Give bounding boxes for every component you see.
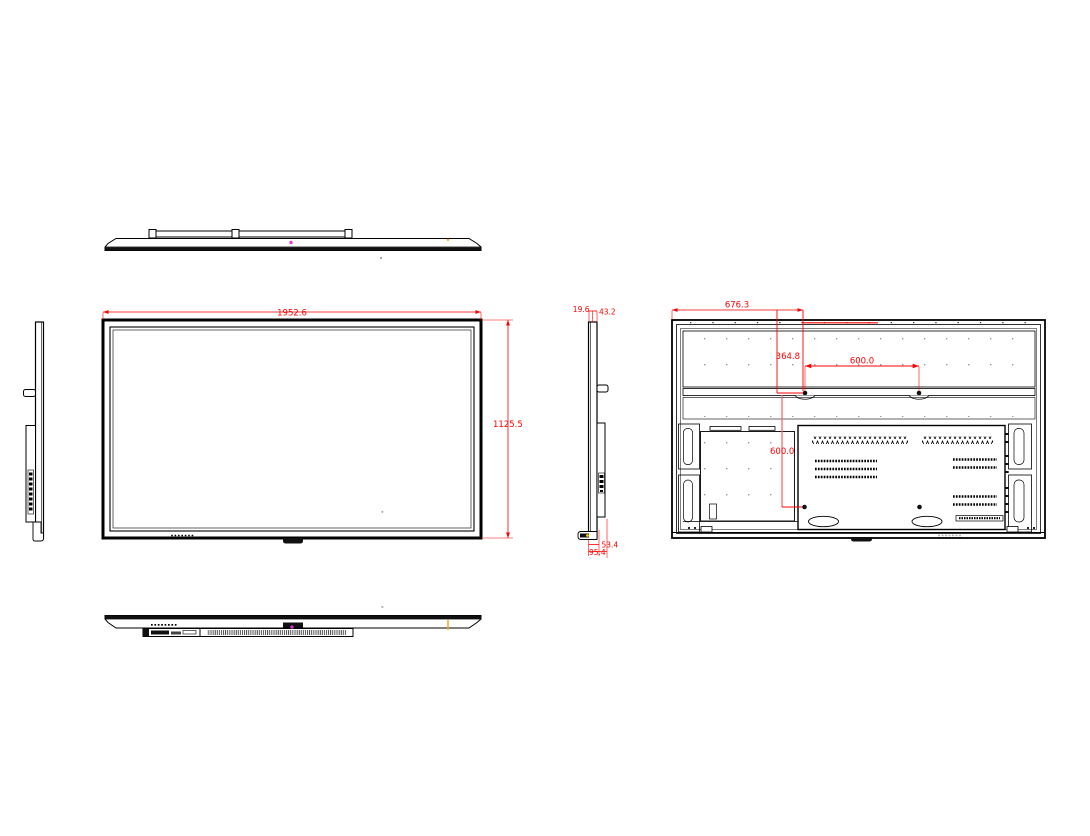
rear-foot-right	[1007, 527, 1018, 533]
bottom-port-panel	[143, 629, 200, 637]
bottom-view-front-edge	[105, 616, 481, 619]
front-ir-tab	[283, 538, 303, 544]
bottom-view	[105, 606, 481, 637]
vesa-hole-top-right	[917, 391, 922, 396]
vesa-hole-bottom-right	[917, 505, 922, 510]
right-side-handle	[597, 385, 608, 392]
left-side-panel	[36, 322, 44, 538]
dim-side-top: 19.6 43.2	[573, 305, 616, 322]
rear-mid-bar	[683, 389, 1035, 396]
stray-mark	[382, 511, 384, 513]
dim-front-height-label: 1125.5	[493, 420, 523, 430]
rear-foot-left	[701, 527, 712, 533]
dim-front-width: 1952.6	[103, 309, 481, 320]
dim-top-depth-label: 43.2	[599, 308, 616, 317]
pen-tray-dot	[586, 534, 589, 537]
rear-mid-band-screw-grid	[690, 400, 1030, 417]
dim-front-height: 1125.5	[482, 320, 523, 538]
ir-sensor-dot	[289, 241, 292, 244]
dim-mount-from-top-label: 364.8	[776, 352, 800, 362]
rear-ir-tab	[851, 537, 872, 542]
dim-vesa-height-label: 600.0	[770, 447, 794, 457]
vent-zigzag-left	[812, 437, 908, 445]
dim-vesa-width-label: 600.0	[850, 357, 874, 367]
dim-panel-thickness-label: 19.6	[573, 305, 590, 314]
vent-zigzag-right	[922, 437, 993, 445]
dim-total-depth-label: 95.4	[589, 548, 606, 557]
vesa-hole-top-left	[803, 391, 808, 396]
power-led-dot	[447, 239, 449, 241]
left-side-handle	[24, 390, 36, 397]
stray-mark	[380, 257, 382, 259]
dim-mount-from-left-label: 676.3	[725, 301, 749, 311]
right-side-panel	[589, 322, 598, 538]
bottom-vent-strip	[200, 629, 353, 637]
stray-mark	[382, 606, 384, 608]
top-view	[105, 230, 481, 260]
right-side-view: 19.6 43.2 53.4 95.4	[573, 305, 619, 558]
dim-front-width-label: 1952.6	[277, 309, 307, 319]
front-view: 1952.6 1125.5	[103, 309, 523, 544]
front-bezel-outer	[103, 320, 481, 538]
rear-view: 676.3 364.8 600.0 600.0	[672, 301, 1045, 542]
left-side-view	[24, 322, 44, 541]
wall-bracket-bar	[149, 230, 352, 239]
rear-slot-bar-2	[749, 427, 775, 431]
technical-drawing-sheet: 1952.6 1125.5	[0, 0, 1090, 836]
rear-slot-bar-1	[710, 427, 741, 431]
top-view-front-edge	[105, 247, 481, 250]
ir-sensor-dot-bottom	[290, 625, 293, 628]
drawing-canvas: 1952.6 1125.5	[0, 0, 1090, 836]
right-side-rear-box	[597, 423, 605, 517]
vesa-hole-bottom-left	[802, 505, 807, 510]
